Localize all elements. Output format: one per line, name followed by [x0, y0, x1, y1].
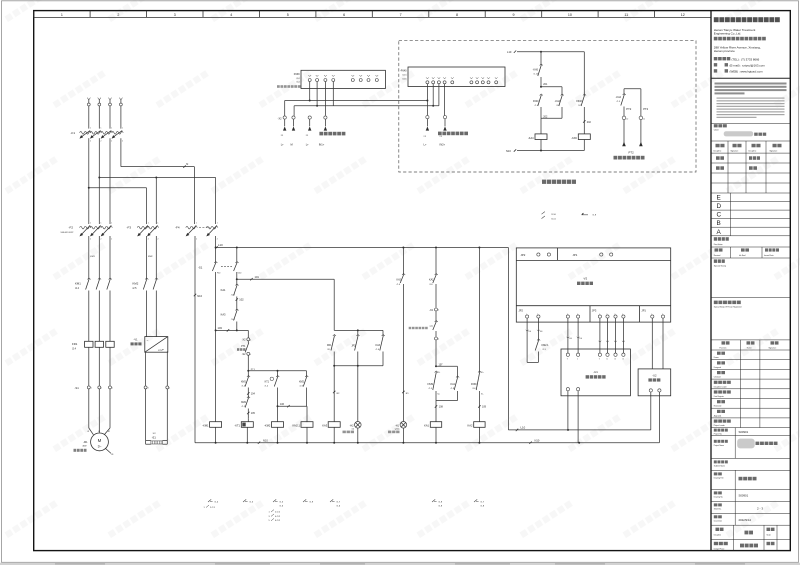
svg-text:L+: L+: [306, 142, 309, 146]
svg-text:1: 1: [158, 222, 159, 224]
svg-text:JP3: JP3: [592, 308, 597, 312]
svg-text:1: 1: [101, 388, 102, 390]
svg-text:-S2: -S2: [242, 353, 246, 356]
svg-text:4: 4: [230, 13, 232, 17]
svg-text:-X2: -X2: [429, 309, 433, 312]
svg-text:2: 2: [90, 141, 91, 143]
svg-text:4: 4: [250, 339, 251, 341]
svg-text:-U1: -U1: [593, 370, 598, 374]
svg-text:-U2: -U2: [652, 374, 657, 378]
svg-text:104: 104: [251, 393, 256, 396]
svg-text:101: 101: [255, 275, 260, 279]
svg-text:KA1: KA1: [221, 288, 226, 292]
svg-text:auto: auto: [430, 324, 434, 327]
svg-text:1: 1: [90, 128, 91, 130]
svg-text:2: 2: [111, 238, 112, 240]
svg-text:-KA4: -KA4: [555, 100, 561, 103]
svg-text:Scale: Scale: [767, 534, 771, 536]
svg-text:Project Leader: Project Leader: [714, 424, 725, 427]
svg-text:KA1: KA1: [450, 383, 455, 386]
svg-text:KA2: KA2: [429, 279, 434, 282]
svg-text:9: 9: [513, 13, 515, 17]
svg-text:-KM2: -KM2: [264, 423, 271, 427]
svg-text:E: E: [717, 195, 721, 202]
svg-text:202: 202: [587, 121, 592, 124]
svg-text:Signature: Signature: [769, 346, 777, 349]
svg-text:Signature: Signature: [770, 149, 778, 152]
svg-text:PT2: PT2: [643, 107, 648, 111]
svg-text:-X2: -X2: [278, 117, 283, 120]
svg-text:Issue Date: Issue Date: [714, 519, 722, 522]
svg-text:Project Name: Project Name: [714, 444, 724, 447]
svg-text:105: 105: [251, 412, 256, 415]
svg-text:First Register: First Register: [714, 395, 724, 398]
svg-text:8: 8: [456, 13, 458, 17]
svg-text:102: 102: [239, 297, 244, 301]
svg-text:2 /2.2: 2 /2.2: [275, 511, 281, 513]
svg-text:KM1: KM1: [75, 281, 81, 285]
svg-text:yellow: yellow: [395, 428, 400, 430]
svg-text:PE: PE: [111, 454, 113, 456]
svg-text:4: 4: [148, 388, 149, 390]
svg-text:F640: F640: [576, 100, 582, 103]
svg-text:2.3: 2.3: [424, 136, 427, 138]
svg-text:-S1: -S1: [198, 265, 203, 269]
svg-text:F639: F639: [294, 73, 300, 76]
svg-text:Name: Name: [747, 347, 752, 349]
svg-text:Special Stamp Of Person Regist: Special Stamp Of Person Registered: [714, 306, 742, 309]
svg-text:Client: Client: [714, 129, 719, 132]
svg-text:1: 1: [148, 222, 149, 224]
svg-text:K2+: K2+: [438, 372, 441, 374]
svg-text:-F2: -F2: [69, 225, 74, 229]
svg-text:KA2: KA2: [396, 279, 401, 282]
svg-text:Drawn: Drawn: [714, 356, 719, 359]
svg-text:Henan province: Henan province: [714, 49, 735, 53]
svg-text:M: M: [98, 438, 102, 443]
svg-text:-KA5: -KA5: [571, 137, 577, 140]
svg-text:Sheet No.: Sheet No.: [714, 507, 722, 510]
svg-text:KM1: KM1: [90, 256, 95, 258]
svg-text:201: 201: [543, 83, 548, 86]
svg-text:M: M: [291, 142, 293, 146]
svg-text:A: A: [717, 229, 722, 236]
svg-text:/1.11: /1.11: [551, 218, 556, 220]
svg-text:F640: F640: [533, 100, 539, 103]
svg-text:1: 1: [111, 128, 112, 130]
svg-text:10: 10: [626, 119, 628, 121]
svg-text:KA1: KA1: [424, 423, 429, 427]
svg-text:-F640: -F640: [400, 70, 407, 73]
svg-text:Design Phase: Design Phase: [714, 548, 725, 550]
svg-text:FR1: FR1: [72, 342, 78, 346]
svg-text:4kW: 4kW: [82, 445, 86, 447]
svg-text:2: 2: [148, 238, 149, 240]
svg-text:N10: N10: [197, 294, 202, 298]
svg-text:KA3: KA3: [221, 313, 226, 317]
svg-text:2: 2: [117, 13, 119, 17]
svg-text:100: 100: [569, 338, 572, 340]
svg-text:JP2: JP2: [521, 253, 526, 257]
svg-text:2: 2: [196, 238, 197, 240]
svg-text:KM2: KM2: [241, 401, 247, 404]
svg-text:-X2: -X2: [242, 339, 246, 342]
svg-text:1: 1: [101, 222, 102, 224]
svg-text:1: 1: [61, 13, 63, 17]
svg-text:100: 100: [580, 338, 583, 340]
svg-text:(TEL) : (T) 3733 8666: (TEL) : (T) 3733 8666: [732, 57, 760, 61]
svg-text:JP2: JP2: [519, 308, 524, 312]
svg-text:N: N: [186, 162, 188, 166]
svg-text:Discipline: Discipline: [714, 534, 721, 536]
svg-text:-E1: -E1: [152, 435, 157, 439]
svg-text:11: 11: [643, 119, 645, 121]
svg-text:D: D: [717, 203, 722, 210]
svg-text:4 /3.2: 4 /3.2: [275, 516, 281, 518]
svg-text:-V1: -V1: [134, 337, 139, 341]
svg-text:-KA5: -KA5: [533, 68, 539, 71]
svg-text:L+: L+: [424, 142, 427, 146]
svg-text:B: B: [717, 220, 721, 227]
svg-text:F639: F639: [428, 383, 434, 386]
svg-text:IN1+: IN1+: [319, 142, 325, 146]
svg-text:P40: P40: [217, 273, 220, 275]
svg-text:S00901: S00901: [739, 430, 749, 434]
svg-text:1: 1: [196, 222, 197, 224]
svg-text:100: 100: [540, 331, 543, 333]
svg-text:KM2: KM2: [299, 380, 305, 383]
svg-text:2.3: 2.3: [281, 135, 284, 137]
svg-text:/2.4: /2.4: [72, 347, 77, 350]
svg-text:-F3: -F3: [127, 225, 132, 229]
svg-text:KM2.1: KM2.1: [542, 344, 550, 347]
svg-text:KM2.1: KM2.1: [293, 423, 301, 427]
svg-text:1: 1: [111, 222, 112, 224]
svg-text:106: 106: [280, 403, 285, 406]
svg-text:PT2: PT2: [629, 151, 635, 155]
svg-text:W1: W1: [108, 431, 110, 433]
svg-text:1: 1: [122, 128, 123, 130]
svg-text:JP1: JP1: [641, 308, 646, 312]
svg-text:L+: L+: [281, 142, 284, 146]
svg-text:7: 7: [400, 13, 402, 17]
svg-text:Signature: Signature: [731, 149, 739, 152]
svg-text:10: 10: [568, 13, 572, 17]
svg-text:KM1: KM1: [241, 380, 247, 383]
svg-text:103: 103: [218, 326, 223, 330]
svg-text:KM2: KM2: [148, 256, 153, 258]
svg-text:First Issue: First Issue: [714, 243, 723, 246]
svg-text:Discipline Leader: Discipline Leader: [714, 385, 727, 388]
svg-text:4: 4: [250, 354, 251, 356]
svg-text:-KM1: -KM1: [202, 423, 209, 427]
svg-text:-S1: -S1: [75, 386, 80, 390]
svg-text:2: 2: [158, 238, 159, 240]
svg-text:L10: L10: [507, 50, 512, 54]
svg-text:-H1: -H1: [395, 424, 400, 427]
svg-text:3: 3: [174, 13, 176, 17]
svg-text:VGB-63 D16 3P: VGB-63 D16 3P: [61, 232, 75, 234]
svg-text:KA3: KA3: [322, 423, 327, 427]
svg-text:1: 1: [91, 388, 92, 390]
svg-text:FR1: FR1: [327, 344, 332, 347]
svg-text:-V2: -V2: [583, 277, 588, 281]
svg-text:~: ~: [147, 339, 149, 343]
svg-text:109: 109: [482, 406, 487, 409]
svg-text:-KA4: -KA4: [616, 96, 622, 99]
svg-text:2: 2: [101, 238, 102, 240]
svg-text:-F1: -F1: [71, 131, 76, 135]
svg-text:2022/9/14: 2022/9/14: [739, 518, 752, 522]
svg-text:Engineering Co.,Ltd.: Engineering Co.,Ltd.: [714, 31, 742, 35]
svg-text:C: C: [717, 212, 722, 219]
svg-text:KT1: KT1: [265, 380, 270, 383]
svg-text:3~: 3~: [98, 444, 102, 448]
svg-text:red: red: [352, 427, 355, 430]
svg-text:-M1: -M1: [83, 441, 88, 444]
svg-text:Discipline: Discipline: [714, 150, 722, 152]
svg-text:KM2: KM2: [133, 281, 139, 285]
svg-text:Drawing No.: Drawing No.: [714, 495, 724, 498]
svg-text:2: 2: [90, 238, 91, 240]
svg-text:-H2: -H2: [350, 424, 355, 427]
svg-text:JP2: JP2: [351, 345, 356, 348]
svg-text:6 /3.2: 6 /3.2: [275, 520, 281, 522]
svg-text:N10: N10: [535, 438, 540, 442]
svg-text:/2.5: /2.5: [133, 287, 138, 290]
svg-text:Function: Function: [720, 346, 727, 349]
svg-text:V1: V1: [98, 431, 100, 433]
svg-text:KA2: KA2: [467, 423, 472, 427]
svg-text:/1.10: /1.10: [551, 214, 557, 216]
svg-text:N10: N10: [506, 149, 511, 153]
svg-text:F639: F639: [471, 383, 477, 386]
svg-text:2 - 3: 2 - 3: [757, 507, 763, 511]
svg-text:11: 11: [624, 13, 628, 17]
svg-text:JP1: JP1: [573, 253, 578, 257]
svg-text:Reviewed: Reviewed: [714, 406, 721, 408]
svg-text:2.3: 2.3: [440, 136, 443, 138]
svg-text:Ink Seal: Ink Seal: [739, 255, 746, 257]
svg-text:U1: U1: [87, 431, 89, 433]
svg-text:1: 1: [90, 222, 91, 224]
svg-text:4: 4: [169, 388, 170, 390]
svg-text:Subitem Name: Subitem Name: [714, 464, 725, 467]
svg-text:(E-mail) : xxtyscl@163.com: (E-mail) : xxtyscl@163.com: [730, 63, 766, 67]
svg-text:202: 202: [543, 115, 548, 118]
svg-text:Drawing Title: Drawing Title: [714, 476, 724, 479]
svg-text:-KA4: -KA4: [528, 137, 534, 140]
svg-text:N10: N10: [263, 438, 268, 442]
svg-text:2: 2: [122, 141, 123, 143]
svg-text:PT2: PT2: [626, 107, 631, 111]
svg-text:L10: L10: [218, 243, 223, 247]
svg-text:Project No.: Project No.: [714, 433, 723, 436]
svg-text:(WEB) : www.hgtyscl.com: (WEB) : www.hgtyscl.com: [730, 70, 764, 74]
svg-text:Designed: Designed: [714, 367, 721, 369]
svg-text:/2.4: /2.4: [75, 287, 80, 290]
svg-text:-KT1: -KT1: [234, 423, 240, 427]
svg-text:12: 12: [681, 13, 685, 17]
svg-text:Issued Date: Issued Date: [764, 254, 774, 257]
svg-text:KA3: KA3: [375, 344, 380, 347]
svg-text:2.3: 2.3: [306, 135, 309, 137]
svg-text:108: 108: [439, 406, 444, 409]
svg-text:Revised: Revised: [714, 255, 721, 257]
svg-text:2: 2: [111, 141, 112, 143]
svg-text:2: 2: [101, 141, 102, 143]
svg-text:PT1: PT1: [241, 345, 246, 348]
svg-text:1: 1: [217, 222, 218, 224]
svg-text:100: 100: [529, 331, 532, 333]
svg-text:O40: O40: [238, 273, 241, 275]
svg-text:IN2+: IN2+: [440, 142, 446, 146]
svg-text:1: 1: [101, 128, 102, 130]
svg-text:L10: L10: [521, 426, 526, 430]
svg-text:6: 6: [343, 13, 345, 17]
svg-text:S00901: S00901: [739, 494, 749, 498]
svg-text:Special Stamp: Special Stamp: [714, 265, 726, 268]
svg-text:2: 2: [217, 238, 218, 240]
svg-text:K1+: K1+: [481, 372, 484, 374]
svg-text:Discipline: Discipline: [749, 150, 757, 152]
svg-text:S2750: S2750: [158, 350, 163, 352]
svg-text:Checked: Checked: [714, 377, 721, 379]
svg-text:Approved: Approved: [714, 414, 721, 417]
svg-text:5: 5: [287, 13, 289, 17]
svg-text:2 /2.1: 2 /2.1: [210, 507, 216, 509]
svg-text:-F4: -F4: [175, 225, 180, 229]
